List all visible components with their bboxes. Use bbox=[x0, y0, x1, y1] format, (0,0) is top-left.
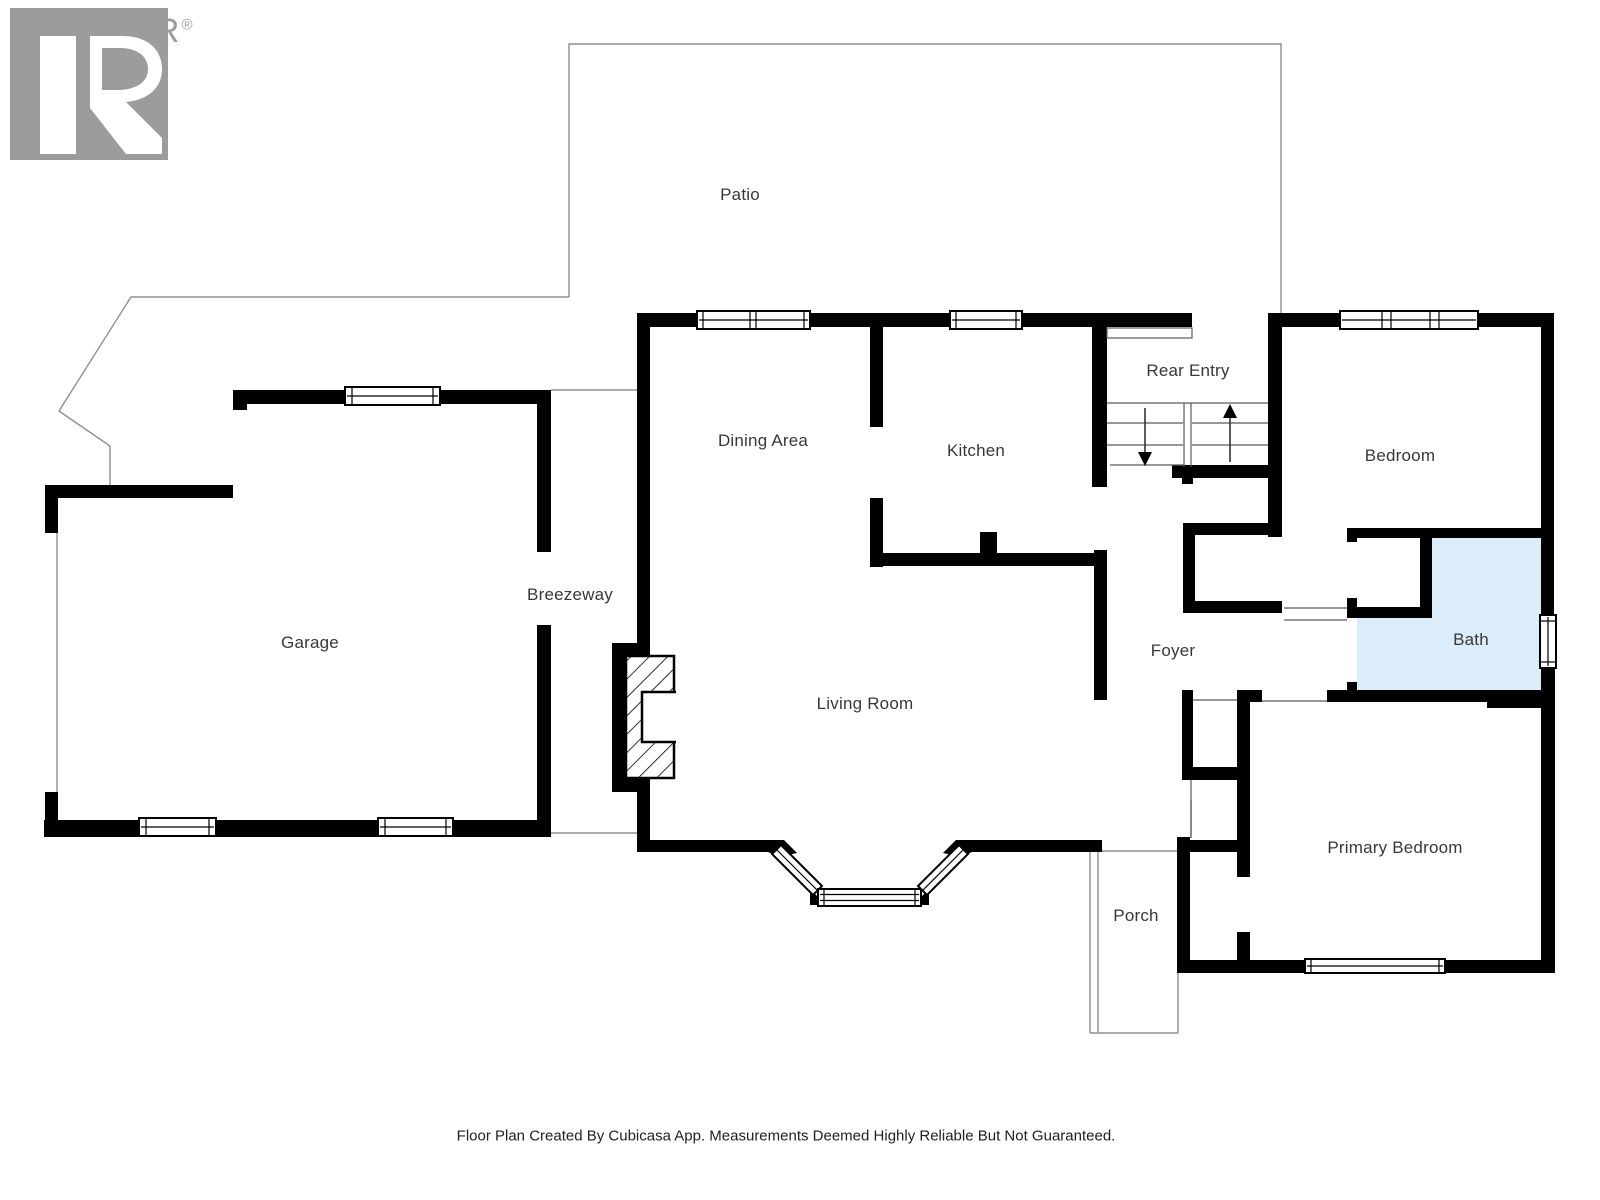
room-label-primary: Primary Bedroom bbox=[1327, 838, 1462, 858]
floor-plan-page: Patio Garage Breezeway Dining Area Kitch… bbox=[0, 0, 1600, 1200]
room-label-patio: Patio bbox=[720, 185, 760, 205]
room-label-porch: Porch bbox=[1113, 906, 1158, 926]
up-arrow-icon bbox=[1223, 404, 1237, 462]
fireplace bbox=[626, 656, 676, 778]
staircase bbox=[1107, 328, 1268, 467]
room-label-dining: Dining Area bbox=[718, 431, 808, 451]
room-label-living: Living Room bbox=[817, 694, 914, 714]
garage-bottom-window-right bbox=[378, 818, 453, 836]
down-arrow-icon bbox=[1138, 408, 1152, 466]
room-label-bedroom: Bedroom bbox=[1365, 446, 1435, 466]
room-label-bath: Bath bbox=[1453, 630, 1489, 650]
room-label-rear-entry: Rear Entry bbox=[1146, 361, 1229, 381]
dining-window bbox=[697, 311, 810, 329]
realtor-watermark: REALTOR® bbox=[10, 8, 240, 48]
room-label-foyer: Foyer bbox=[1151, 641, 1195, 661]
rear-entry-threshold bbox=[1107, 328, 1192, 338]
garage-top-window bbox=[345, 387, 440, 405]
realtor-logo-icon bbox=[10, 8, 168, 160]
footer-disclaimer: Floor Plan Created By Cubicasa App. Meas… bbox=[457, 1128, 1116, 1145]
garage-bottom-window-left bbox=[139, 818, 216, 836]
registered-mark: ® bbox=[181, 17, 192, 34]
floor-plan-canvas bbox=[0, 0, 1600, 1200]
bedroom-window bbox=[1340, 311, 1478, 329]
room-label-kitchen: Kitchen bbox=[947, 441, 1005, 461]
bay-window bbox=[768, 840, 972, 906]
kitchen-window bbox=[950, 311, 1022, 329]
threshold-lines bbox=[1191, 608, 1347, 838]
room-label-garage: Garage bbox=[281, 633, 339, 653]
bath-window bbox=[1540, 615, 1556, 668]
room-label-breezeway: Breezeway bbox=[527, 585, 613, 605]
primary-bedroom-window bbox=[1305, 959, 1445, 973]
